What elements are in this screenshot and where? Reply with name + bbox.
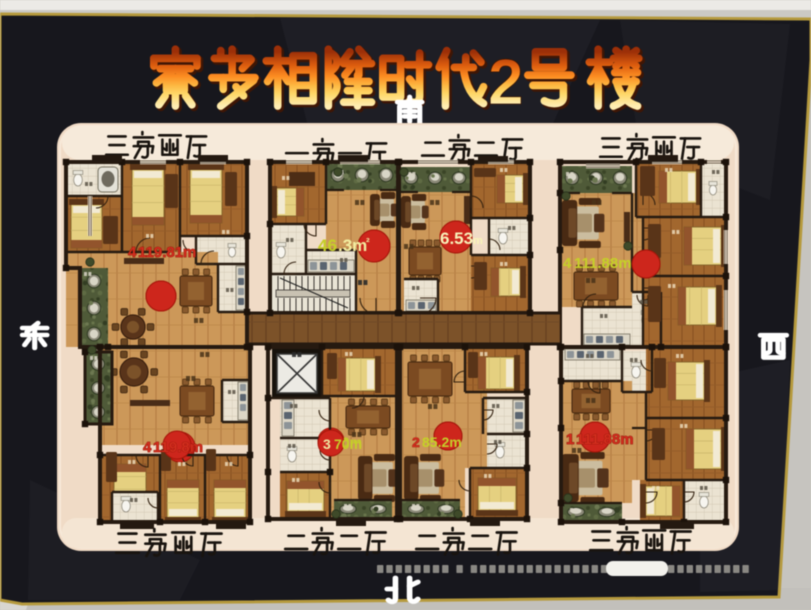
svg-text:.3m: .3m <box>338 236 367 255</box>
svg-text:6.53: 6.53 <box>440 229 473 248</box>
svg-text:1: 1 <box>566 431 574 448</box>
svg-text:2: 2 <box>488 46 524 118</box>
svg-text:4: 4 <box>128 244 137 261</box>
svg-text:46: 46 <box>318 236 337 255</box>
svg-text:119.81m: 119.81m <box>138 244 196 261</box>
svg-text:85.2m: 85.2m <box>422 434 462 450</box>
svg-text:70m: 70m <box>334 436 362 452</box>
svg-text:2: 2 <box>412 434 420 450</box>
svg-text:m: m <box>473 235 483 247</box>
svg-text:4: 4 <box>143 439 152 456</box>
svg-text:119.8m: 119.8m <box>153 439 203 456</box>
svg-text:111.88m: 111.88m <box>576 431 634 448</box>
svg-text:²: ² <box>366 237 370 249</box>
svg-text:111.88m: 111.88m <box>574 255 632 272</box>
svg-text:3: 3 <box>323 436 331 452</box>
svg-text:4: 4 <box>563 255 572 272</box>
